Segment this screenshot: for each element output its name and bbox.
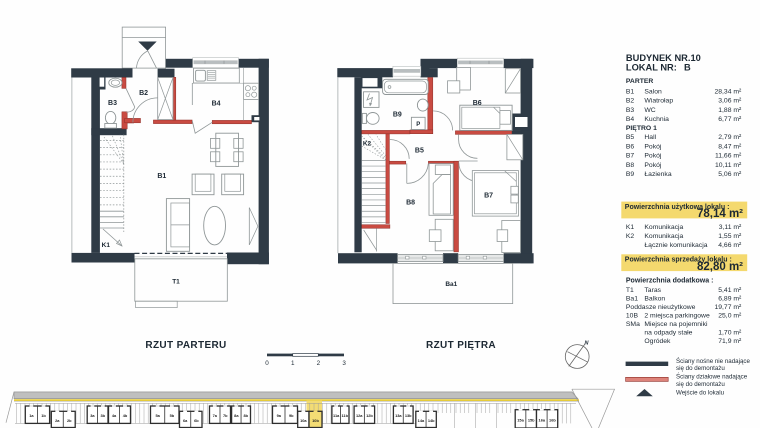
svg-text:B6: B6 (473, 100, 482, 107)
svg-text:25,0 m²: 25,0 m² (718, 313, 742, 320)
svg-text:Łącznie komunikacja: Łącznie komunikacja (644, 242, 707, 249)
svg-text:B1: B1 (157, 173, 166, 180)
svg-text:B2: B2 (139, 90, 148, 97)
svg-text:K1: K1 (626, 224, 635, 231)
svg-text:10,11 m²: 10,11 m² (715, 162, 742, 169)
svg-text:15b: 15b (528, 417, 535, 422)
svg-text:Hall: Hall (644, 134, 656, 141)
svg-text:0: 0 (265, 360, 269, 367)
svg-text:Powierzchnia dodatkowa :: Powierzchnia dodatkowa : (626, 278, 714, 285)
svg-text:3b: 3b (101, 413, 106, 418)
svg-text:się do demontażu: się do demontażu (676, 365, 725, 372)
svg-text:7b: 7b (223, 413, 228, 418)
svg-text:19,77 m²: 19,77 m² (714, 304, 742, 311)
svg-text:28,34 m²: 28,34 m² (714, 88, 742, 95)
svg-text:Łazienka: Łazienka (644, 171, 671, 178)
svg-text:5b: 5b (170, 413, 175, 418)
svg-text:1,55 m²: 1,55 m² (718, 233, 742, 240)
svg-text:11a: 11a (333, 413, 340, 418)
svg-text:B8: B8 (626, 162, 635, 169)
svg-text:Pokój: Pokój (644, 153, 661, 160)
svg-text:Pokój: Pokój (644, 162, 661, 169)
svg-text:16b: 16b (549, 417, 556, 422)
svg-text:B4: B4 (212, 101, 221, 108)
svg-text:LOKAL NR:: LOKAL NR: (626, 63, 677, 73)
svg-text:T1: T1 (626, 287, 634, 294)
svg-text:Ściany działowe nadające: Ściany działowe nadające (676, 373, 748, 381)
svg-text:4,66 m²: 4,66 m² (718, 242, 742, 249)
svg-text:6,89 m²: 6,89 m² (718, 296, 742, 303)
svg-text:na odpady stałe: na odpady stałe (644, 329, 692, 336)
svg-text:Balkon: Balkon (644, 296, 665, 303)
svg-text:Komunikacja: Komunikacja (644, 233, 683, 240)
svg-text:Kuchnia: Kuchnia (644, 116, 669, 123)
svg-text:16a: 16a (539, 417, 546, 422)
svg-text:Wiatrołap: Wiatrołap (644, 98, 673, 105)
svg-text:13a: 13a (395, 413, 402, 418)
svg-text:Ba1: Ba1 (626, 296, 638, 303)
svg-text:12b: 12b (366, 413, 373, 418)
svg-text:B8: B8 (406, 200, 415, 207)
svg-text:Ogródek: Ogródek (644, 338, 671, 345)
svg-text:Pokój: Pokój (644, 143, 661, 150)
svg-text:14a: 14a (418, 418, 425, 423)
svg-text:B9: B9 (393, 112, 402, 119)
svg-text:B3: B3 (108, 100, 117, 107)
svg-text:1b: 1b (41, 413, 46, 418)
svg-text:12a: 12a (356, 413, 363, 418)
svg-text:2b: 2b (67, 418, 72, 423)
svg-text:5,41 m²: 5,41 m² (718, 287, 742, 294)
svg-text:15a: 15a (517, 417, 524, 422)
svg-text:K1: K1 (102, 242, 111, 249)
svg-text:6b: 6b (194, 418, 199, 423)
svg-text:10B: 10B (626, 313, 639, 320)
svg-text:B9: B9 (626, 171, 635, 178)
svg-text:13b: 13b (405, 413, 412, 418)
svg-text:się do demontażu: się do demontażu (676, 381, 725, 388)
svg-text:Wejście do lokalu: Wejście do lokalu (676, 390, 725, 397)
svg-text:PARTER: PARTER (626, 78, 654, 85)
svg-text:B5: B5 (626, 134, 635, 141)
svg-text:K2: K2 (363, 140, 372, 147)
svg-text:1,88 m²: 1,88 m² (718, 107, 742, 114)
svg-text:RZUT PARTERU: RZUT PARTERU (145, 340, 226, 351)
svg-text:82,80 m²: 82,80 m² (697, 261, 743, 273)
svg-text:11,66 m²: 11,66 m² (715, 153, 742, 160)
svg-text:SMa: SMa (626, 321, 640, 328)
svg-text:Salon: Salon (644, 88, 662, 95)
svg-text:T1: T1 (172, 279, 180, 286)
svg-text:B5: B5 (415, 148, 424, 155)
svg-text:Komunikacja: Komunikacja (644, 224, 683, 231)
svg-text:B7: B7 (626, 153, 635, 160)
svg-text:9b: 9b (289, 413, 294, 418)
svg-text:14b: 14b (428, 418, 435, 423)
svg-text:10b: 10b (312, 418, 319, 423)
svg-text:Taras: Taras (644, 287, 661, 294)
svg-text:B2: B2 (626, 98, 635, 105)
svg-text:8b: 8b (244, 413, 249, 418)
svg-text:P: P (416, 122, 420, 128)
svg-text:B1: B1 (626, 88, 635, 95)
svg-text:K2: K2 (626, 233, 635, 240)
svg-text:RZUT PIĘTRA: RZUT PIĘTRA (426, 340, 496, 351)
svg-text:6,77 m²: 6,77 m² (718, 116, 742, 123)
svg-text:1,70 m²: 1,70 m² (718, 329, 742, 336)
svg-text:Poddasze nieużytkowe: Poddasze nieużytkowe (626, 304, 696, 311)
svg-text:3: 3 (342, 360, 346, 367)
svg-text:BUDYNEK NR.10: BUDYNEK NR.10 (626, 53, 701, 63)
svg-text:71,9 m²: 71,9 m² (718, 338, 742, 345)
svg-text:8,47 m²: 8,47 m² (718, 143, 742, 150)
svg-text:78,14 m²: 78,14 m² (697, 208, 743, 220)
svg-text:PIĘTRO 1: PIĘTRO 1 (626, 125, 657, 132)
svg-text:B7: B7 (484, 193, 493, 200)
svg-text:WC: WC (644, 107, 655, 114)
svg-text:5,06 m²: 5,06 m² (718, 171, 742, 178)
svg-text:11b: 11b (341, 413, 348, 418)
svg-text:10a: 10a (300, 418, 307, 423)
svg-text:Miejsce na pojemniki: Miejsce na pojemniki (644, 321, 708, 328)
svg-text:B3: B3 (626, 107, 635, 114)
svg-text:Ściany nośne nie nadające: Ściany nośne nie nadające (676, 357, 751, 365)
svg-text:1: 1 (291, 360, 295, 367)
svg-text:2,79 m²: 2,79 m² (718, 134, 742, 141)
svg-text:3,06 m²: 3,06 m² (718, 98, 742, 105)
svg-text:B6: B6 (626, 143, 635, 150)
svg-text:B4: B4 (626, 116, 635, 123)
svg-text:2 miejsca parkingowe: 2 miejsca parkingowe (644, 313, 710, 320)
svg-text:B: B (684, 63, 691, 73)
svg-text:Ba1: Ba1 (445, 281, 457, 288)
svg-text:3,11 m²: 3,11 m² (719, 224, 742, 231)
svg-text:2: 2 (317, 360, 321, 367)
svg-text:4b: 4b (123, 413, 128, 418)
